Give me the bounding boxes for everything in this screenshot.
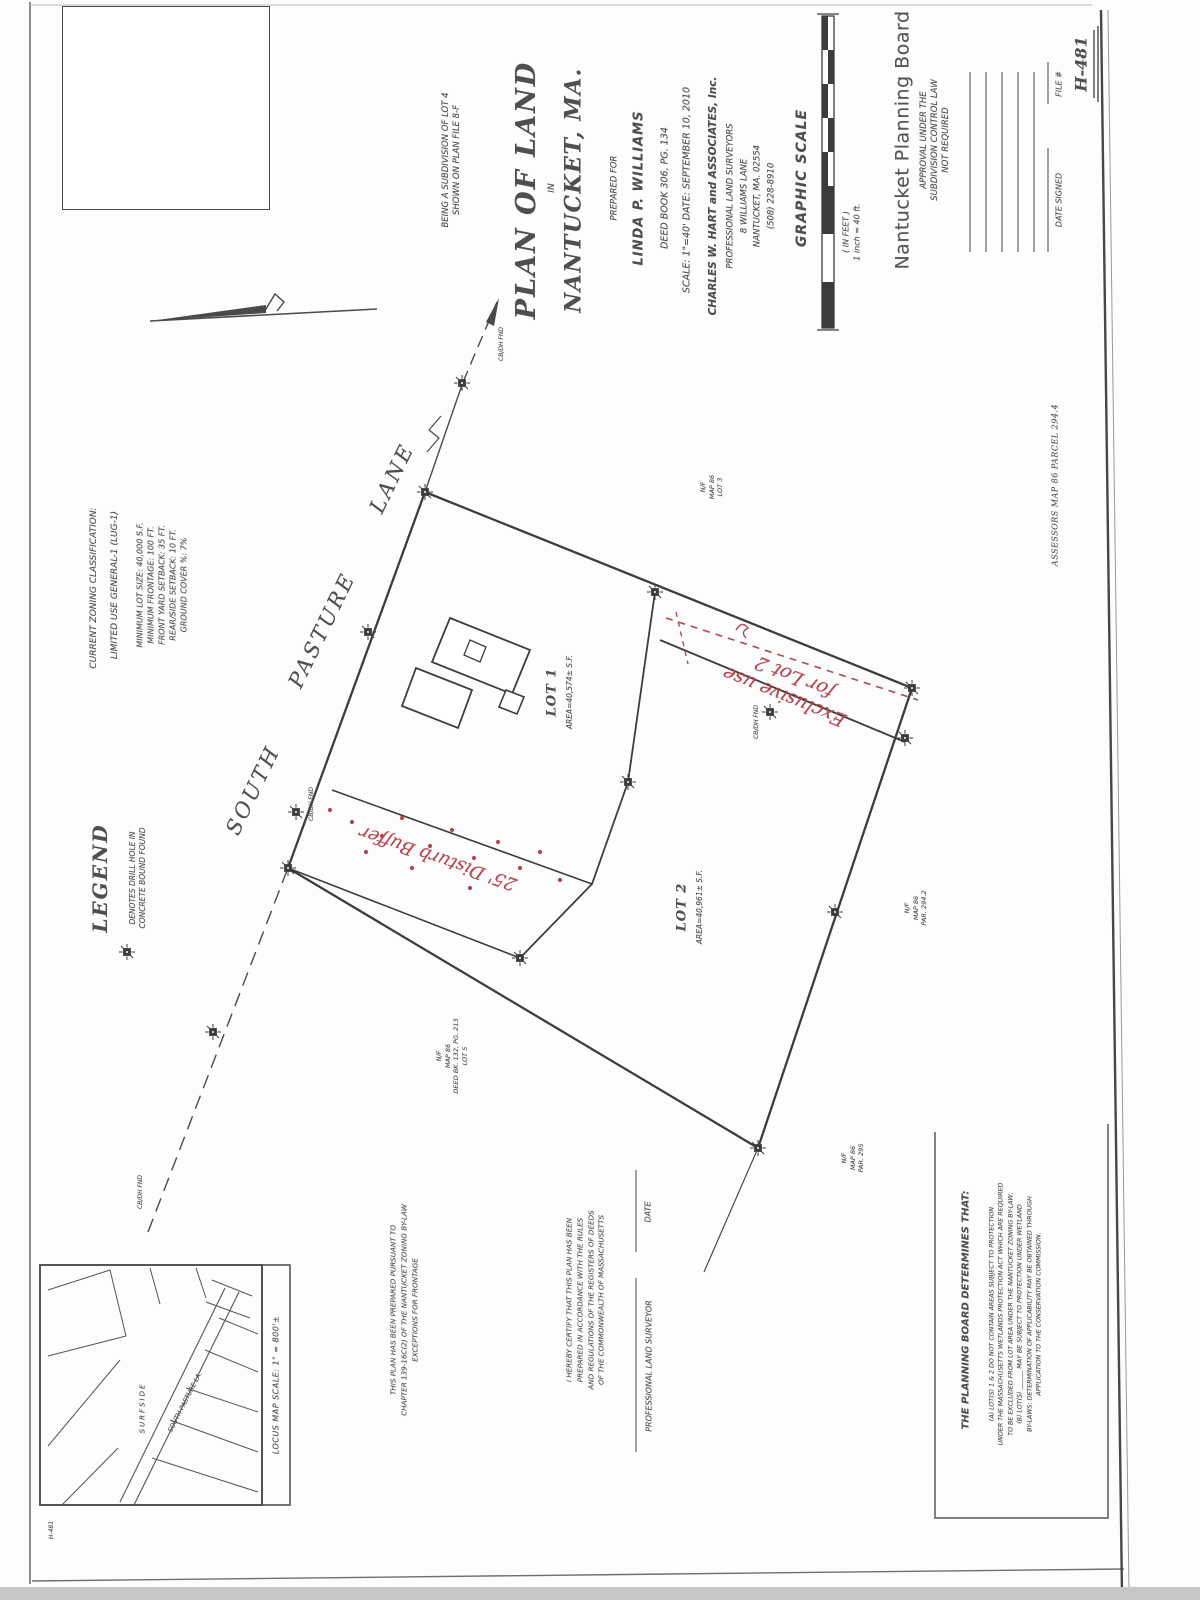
abutter-line: LOT 3 [716, 475, 725, 499]
lot2-label: LOT 2 [673, 883, 690, 932]
zoning-rear-setback: REAR/SIDE SETBACK: 10 FT. [169, 529, 180, 640]
file-number-label: FILE # [1055, 71, 1066, 97]
monument-found-label: CB/DH FND [308, 787, 316, 821]
board-note-line: BY-LAWS; DETERMINATION OF APPLICABILITY … [1025, 1183, 1034, 1446]
abutter-line: N/F [903, 890, 912, 925]
abutter-line: MAP 86 [912, 890, 921, 925]
pursuant-line: THIS PLAN HAS BEEN PREPARED PURSUANT TO [387, 1204, 398, 1416]
abutter-label: N/F MAP 86 LOT 3 [699, 475, 725, 499]
date-signed-label: DATE SIGNED [1055, 173, 1066, 227]
subdivision-note-line1: BEING A SUBDIVISION OF LOT 4 [441, 92, 452, 227]
abutter-line: MAP 86 [708, 475, 717, 499]
scale-date: SCALE: 1"=40' DATE: SEPTEMBER 10, 2010 [682, 87, 695, 293]
surveyor-label: PROFESSIONAL LAND SURVEYOR [645, 1300, 656, 1432]
board-note-line: (B) LOT(S) ______ MAY BE SUBJECT TO PROT… [1016, 1183, 1025, 1446]
registry-line: PREPARED IN ACCORDANCE WITH THE RULES [575, 1210, 586, 1389]
approval-line2: SUBDIVISION CONTROL LAW [930, 79, 941, 201]
zoning-heading: CURRENT ZONING CLASSIFICATION: [89, 507, 101, 668]
lot1-area: AREA=40,574± S.F. [565, 655, 575, 729]
planning-board-title: Nantucket Planning Board [890, 10, 915, 269]
board-note-line: (A) LOT(S) 1 & 2 DO NOT CONTAIN AREAS SU… [988, 1183, 997, 1446]
abutter-line: N/F [699, 475, 708, 499]
surveyor-firm: CHARLES W. HART and ASSOCIATES, Inc. [707, 77, 721, 316]
assessors-note: ASSESSORS MAP 86 PARCEL 294.4 [1051, 404, 1062, 566]
parcel-boundary [288, 492, 912, 1272]
registry-line: I HEREBY CERTIFY THAT THIS PLAN HAS BEEN [564, 1210, 575, 1389]
scanned-survey-plan: { "sheet": { "number": "H-481", "corner_… [0, 0, 1200, 1600]
sheet-number-underline [1094, 26, 1098, 102]
planning-board-approval: APPROVAL UNDER THE SUBDIVISION CONTROL L… [919, 79, 953, 201]
revision-box [62, 6, 270, 210]
signature-lines [970, 62, 1048, 252]
graphic-scale-bar [817, 14, 839, 330]
plan-title-in: IN [547, 183, 559, 192]
pursuant-note: THIS PLAN HAS BEEN PREPARED PURSUANT TO … [387, 1204, 420, 1416]
north-arrow-icon [150, 294, 377, 321]
subdivision-note: BEING A SUBDIVISION OF LOT 4 SHOWN ON PL… [441, 92, 463, 227]
approval-line1: APPROVAL UNDER THE [919, 79, 930, 201]
monument-found-label: CB/DH FND [137, 1175, 145, 1209]
abutter-line: N/F [840, 1143, 849, 1172]
abutter-line: DEED BK. 132, PG. 213 [452, 1018, 461, 1093]
zoning-district: LIMITED USE GENERAL-1 (LUG-1) [110, 511, 122, 659]
legend-monument-symbol [119, 944, 135, 960]
registry-line: OF THE COMMONWEALTH OF MASSACHUSETTS [597, 1210, 608, 1389]
abutter-line: PAR. 294.2 [920, 890, 929, 925]
firm-address1: 8 WILLIAMS LANE [739, 159, 750, 234]
graphic-scale-units: ( IN FEET ) 1 inch = 40 ft. [841, 203, 862, 260]
abutter-line: N/F [435, 1018, 444, 1093]
locus-map [40, 1265, 290, 1505]
board-note-line: UNDER THE MASSACHUSETTS WETLANDS PROTECT… [997, 1183, 1006, 1446]
pursuant-line: EXCEPTIONS FOR FRONTAGE [410, 1204, 421, 1416]
client-name: LINDA P. WILLIAMS [630, 111, 647, 266]
board-note-line: TO BE EXCLUDED FROM LOT AREA UNDER THE N… [1007, 1183, 1016, 1446]
surveyor-firm-line2: PROFESSIONAL LAND SURVEYORS [725, 123, 736, 268]
building-footprint [402, 618, 530, 728]
zoning-lot-size: MINIMUM LOT SIZE: 40,000 S.F. [136, 522, 147, 647]
legend-item: DENOTES DRILL HOLE IN CONCRETE BOUND FOU… [128, 827, 148, 928]
monument-found-label: CB/DH FND [498, 327, 506, 361]
deed-reference: DEED BOOK 306, PG. 134 [660, 127, 673, 249]
legend-item-line1: DENOTES DRILL HOLE IN [128, 827, 138, 928]
plan-title: PLAN OF LAND [509, 61, 545, 319]
date-label: DATE [644, 1202, 655, 1223]
graphic-scale-in-feet: ( IN FEET ) [841, 203, 852, 260]
pursuant-line: CHAPTER 139-16C(2) OF THE NANTUCKET ZONI… [398, 1204, 409, 1416]
lot1-label: LOT 1 [543, 668, 560, 717]
monument-found-label: CB/DH FND [753, 705, 761, 739]
zoning-frontage: MINIMUM FRONTAGE: 100 FT. [147, 526, 158, 643]
registry-line: AND REGULATIONS OF THE REGISTERS OF DEED… [586, 1210, 597, 1389]
board-note-line: APPLICATION TO THE CONSERVATION COMMISSI… [1035, 1183, 1044, 1446]
monument-markers [205, 375, 920, 1156]
approval-line3: NOT REQUIRED [942, 79, 953, 201]
graphic-scale-inch-note: 1 inch = 40 ft. [852, 203, 863, 260]
abutter-label: N/F MAP 86 PAR. 294.2 [903, 890, 929, 925]
lot2-area: AREA=40,961± S.F. [695, 870, 705, 944]
graphic-scale-label: GRAPHIC SCALE [793, 109, 811, 247]
corner-sheet-number: H-481 [48, 1521, 56, 1539]
abutter-label: N/F MAP 86 DEED BK. 132, PG. 213 LOT 5 [435, 1018, 469, 1093]
abutter-line: MAP 86 [849, 1143, 858, 1172]
abutter-line: LOT 5 [461, 1018, 470, 1093]
prepared-for-label: PREPARED FOR [609, 156, 620, 221]
zoning-front-setback: FRONT YARD SETBACK: 35 FT. [158, 525, 169, 645]
subdivision-note-line2: SHOWN ON PLAN FILE 8-F [452, 92, 463, 227]
board-notes-body: (A) LOT(S) 1 & 2 DO NOT CONTAIN AREAS SU… [988, 1183, 1045, 1446]
locus-map-caption: LOCUS MAP SCALE: 1" = 800'± [272, 1316, 283, 1454]
registry-certification: I HEREBY CERTIFY THAT THIS PLAN HAS BEEN… [564, 1210, 607, 1389]
abutter-label: N/F MAP 86 PAR. 295 [840, 1143, 866, 1172]
firm-address2: NANTUCKET, MA. 02554 [752, 145, 763, 247]
legend-title: LEGEND [87, 823, 113, 932]
board-notes-title: THE PLANNING BOARD DETERMINES THAT: [959, 1190, 972, 1429]
plan-title-town: NANTUCKET, MA. [559, 67, 588, 313]
locus-area-label: SURFSIDE [138, 1383, 147, 1434]
legend-item-line2: CONCRETE BOUND FOUND [138, 827, 148, 928]
abutter-line: PAR. 295 [857, 1143, 866, 1172]
zoning-ground-cover: GROUND COVER %: 7% [180, 538, 191, 633]
abutter-line: MAP 86 [443, 1018, 452, 1093]
scan-edge-artifact [0, 1587, 1200, 1600]
sheet-number: H-481 [1070, 36, 1091, 91]
firm-phone: (508) 228-8910 [766, 163, 777, 229]
